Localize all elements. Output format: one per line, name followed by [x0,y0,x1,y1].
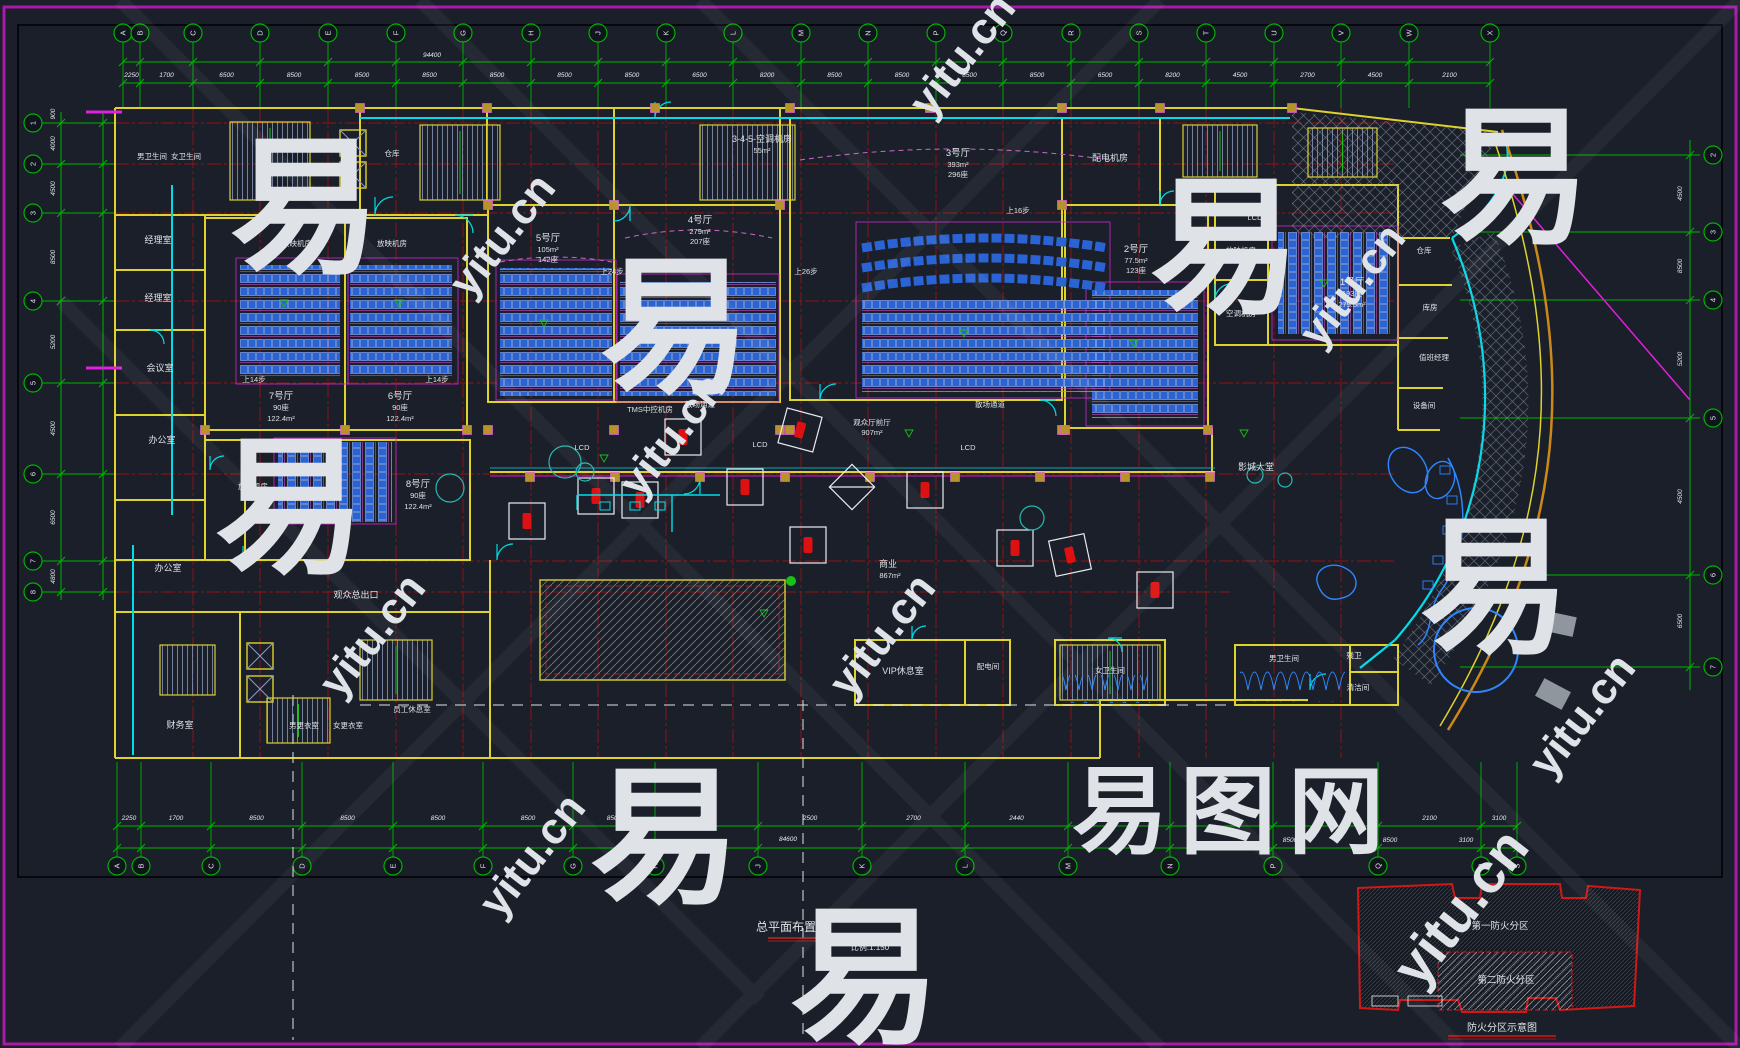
elevation-mark [1240,430,1248,437]
column [483,104,492,113]
dimension-value: 1700 [169,815,184,822]
women-locker-label: 女更衣室 [333,720,363,730]
column [786,426,795,435]
display-case [1440,466,1450,474]
office-label: 办公室 [154,562,181,573]
column [463,426,472,435]
dimension-value: 2100 [1441,72,1457,79]
kiosk-marker [804,537,813,553]
cad-drawing-viewport: A2250B1700C6500D8500E8500F8500G8500H8500… [0,0,1740,1048]
hall8-name: 8号厅 [406,479,431,490]
hall3-seats: 296座 [948,169,969,179]
duty-manager-label: 值班经理 [1419,352,1449,362]
womens-wc-label: 女卫生间 [1095,665,1125,675]
watermark-url: yitu.cn [819,564,945,706]
grid-axis-label: C [189,30,198,36]
front-hall-area: 907m² [861,428,883,437]
top-total-dim: 94400 [423,52,441,59]
dimension-value: 5200 [50,334,57,349]
dimension-value: 8200 [1165,72,1180,79]
dimension-value: 2250 [121,815,137,822]
ac-345-room-label: 3-4-5-空调机房 [732,133,792,144]
column [484,426,493,435]
hall3-area: 393m² [947,160,969,169]
grid-axis-label: 2 [29,162,38,166]
grid-axis-label: E [324,30,333,35]
hall2-seats: 123座 [1126,265,1147,275]
grid-axis-label: 6 [1709,573,1718,577]
fire-diagram-caption: 防火分区示意图 [1467,1021,1537,1034]
column [610,426,619,435]
watermark-glyph: 易 [1420,504,1570,672]
dimension-value: 8500 [557,72,572,79]
manager-room-label: 经理室 [144,292,171,303]
column [1058,201,1067,210]
column [1036,473,1045,482]
hall5-name: 5号厅 [536,233,561,244]
hall6-name: 6号厅 [388,391,413,402]
dimension-value: 4500 [1677,489,1684,504]
dimension-value: 8500 [287,72,302,79]
grid-axis-label: A [119,30,128,35]
dimension-value: 6500 [1098,72,1113,79]
projection-room-label: 放映机房 [377,238,407,248]
plant-circle [436,474,464,502]
hall2-name: 2号厅 [1124,244,1149,255]
grid-axis-label: 4 [29,299,38,303]
kiosk-marker [921,482,930,498]
stair-note: 上14步 [242,375,266,384]
grid-axis-label: A [113,863,122,868]
lcd-label: LCD [752,440,768,449]
column [1288,104,1297,113]
dimension-value: 2700 [1299,72,1315,79]
dimension-value: 6500 [219,72,234,79]
grid-axis-label: U [1270,30,1279,35]
front-hall-label: 观众厅前厅 [853,417,891,427]
column [1204,426,1213,435]
column [1156,104,1165,113]
grid-axis-label: K [662,30,671,35]
fire-zone2-label: 第二防火分区 [1477,974,1535,986]
dimension-value: 8500 [625,72,640,79]
kiosk-marker [794,421,807,439]
counter-stool [600,502,610,510]
column [866,473,875,482]
hall5-area: 105m² [537,245,559,254]
grid-axis-label: J [594,31,603,35]
grid-axis-label: 6 [29,472,38,476]
grid-axis-label: N [864,30,873,35]
dimension-value: 4500 [1677,186,1684,201]
door-swing [1040,400,1056,416]
grid-axis-label: 4 [1709,298,1718,302]
stair-note: 上16步 [1006,206,1030,215]
hall5-seats: 142座 [538,254,559,264]
dimension-value: 4500 [50,421,57,436]
dimension-value: 8500 [1030,72,1045,79]
stair-note: 上26步 [794,267,818,276]
grid-axis-label: P [932,30,941,35]
hall2-area: 77.5m² [1124,256,1148,265]
grid-axis-label: 5 [29,381,38,385]
dimension-value: 8500 [827,72,842,79]
green-marker [786,576,796,586]
commerce-label: 商业 [879,558,897,569]
dimension-value: 4000 [50,136,57,151]
meeting-room-label: 会议室 [146,362,173,373]
grid-axis-label: 8 [29,590,38,594]
grid-axis-label: F [479,863,488,868]
grid-axis-label: W [1405,29,1414,37]
hall8-area: 122.4m² [404,502,432,511]
aisle-label: 散场通道 [975,399,1005,409]
dimension-value: 5200 [1677,351,1684,366]
grid-axis-label: G [569,863,578,869]
watermark-glyph: 易 [600,244,750,412]
ac-345-area: 55m² [753,146,771,155]
column [1206,473,1215,482]
column [526,473,535,482]
floor-plan-svg: A2250B1700C6500D8500E8500F8500G8500H8500… [0,0,1740,1048]
dimension-value: 8500 [895,72,910,79]
power-room-label: 配电机房 [1092,152,1128,163]
manager-room-label: 经理室 [144,234,171,245]
organic-blob [1317,565,1356,599]
grid-axis-label: 1 [29,121,38,125]
hall-seating [500,268,612,396]
dimension-value: 2100 [1421,815,1437,822]
grid-axis-label: M [797,30,806,36]
dimension-value: 2250 [123,72,139,79]
grid-axis-label: 5 [1709,416,1718,420]
dimension-value: 1700 [159,72,174,79]
watermark-glyph: 易 [1150,164,1300,332]
column [781,473,790,482]
grid-axis-label: T [1202,30,1211,35]
storage-label: 仓库 [1417,245,1433,255]
staff-rest-label: 员工休息室 [393,704,431,714]
grid-axis-label: 7 [29,559,38,563]
grid-axis-label: H [527,30,536,35]
grid-axis-label: K [858,863,867,868]
hall7-area: 122.4m² [267,414,295,423]
grid-axis-label: E [389,863,398,868]
cleaning-room-label: 清洁间 [1347,682,1370,692]
dimension-value: 8500 [50,249,57,264]
plant-circle [1020,506,1044,530]
dimension-value: 2440 [1008,815,1024,822]
hall4-area: 279m² [689,227,711,236]
bottom-total-dim: 84600 [779,836,797,843]
hall8-seats: 90座 [410,490,426,500]
hall6-area: 122.4m² [386,414,414,423]
column [1061,426,1070,435]
watermark-layer: 易 易 易 易 易 易 易 易 yitu.cn yitu.cn yitu.cn … [60,0,1740,1048]
watermark-glyph: 易 [790,894,940,1048]
dimension-value: 8500 [431,815,446,822]
kiosk-marker [523,513,532,529]
men-locker-label: 男更衣室 [289,720,319,730]
grid-axis-label: 3 [29,211,38,215]
column [356,104,365,113]
watermark-glyph: 易 [590,754,740,922]
kiosk [1049,534,1092,577]
grid-axis-label: 3 [1709,230,1718,234]
dimension-value: 900 [50,108,57,119]
toilet-fixtures [1240,668,1345,702]
dimension-value: 8500 [422,72,437,79]
hall7-name: 7号厅 [269,391,294,402]
mens-wc-label: 男卫生间 [137,151,167,161]
grid-axis-label: D [256,30,265,36]
kiosk-marker [1011,540,1020,556]
watermark-url: yitu.cn [469,784,595,926]
office-label: 办公室 [148,434,175,445]
grid-axis-label: F [392,30,401,35]
door-swing [150,330,164,344]
dist-room-label: 配电间 [977,661,1000,671]
hall7-seats: 90座 [273,402,289,412]
finance-room-label: 财务室 [166,719,193,730]
watermark-glyph: 易 [215,424,365,592]
womens-wc-label: 女卫生间 [171,151,201,161]
dimension-value: 2500 [802,815,818,822]
dimension-value: 8500 [1677,258,1684,273]
kiosk [509,503,545,539]
display-case [1447,496,1457,504]
grid-axis-label: J [754,864,763,868]
grid-axis-label: 7 [1709,665,1718,669]
door-swing [497,544,513,560]
hall3-name: 3号厅 [946,148,971,159]
dimension-value: 6500 [1677,613,1684,628]
dimension-value: 4500 [1368,72,1383,79]
grid-axis-label: 2 [1709,153,1718,157]
column [651,104,660,113]
plant-circle [1278,473,1292,487]
curved-seat-row [862,238,1108,248]
grid-axis-label: X [1486,30,1495,35]
grid-axis-label: C [207,863,216,869]
kiosk [790,527,826,563]
elevation-mark [600,455,608,462]
dimension-value: 4800 [50,569,57,584]
column [951,473,960,482]
grid-axis-label: V [1337,30,1346,35]
hall4-name: 4号厅 [688,215,713,226]
dimension-value: 4500 [50,181,57,196]
column [786,104,795,113]
lcd-label: LCD [960,443,976,452]
dimension-value: 4500 [1233,72,1248,79]
elevation-mark [905,430,913,437]
kiosk-marker [741,479,750,495]
watermark-glyph: 易 [1440,94,1590,262]
grid-axis-label: R [1067,30,1076,36]
column [776,201,785,210]
hall6-seats: 90座 [392,402,408,412]
dimension-value: 8500 [355,72,370,79]
dimension-value: 6500 [692,72,707,79]
grid-axis-label: B [137,863,146,868]
dimension-value: 8500 [249,815,264,822]
mens-wc-label: 男卫生间 [1269,653,1299,663]
watermark-brand: 易图网 [1072,759,1396,866]
column [1121,473,1130,482]
watermark-glyph: 易 [230,124,380,292]
storage-label: 仓库 [385,148,400,158]
stair-note: 上14步 [425,375,449,384]
equipment-room-label: 设备间 [1413,400,1436,410]
dimension-value: 6500 [50,510,57,525]
